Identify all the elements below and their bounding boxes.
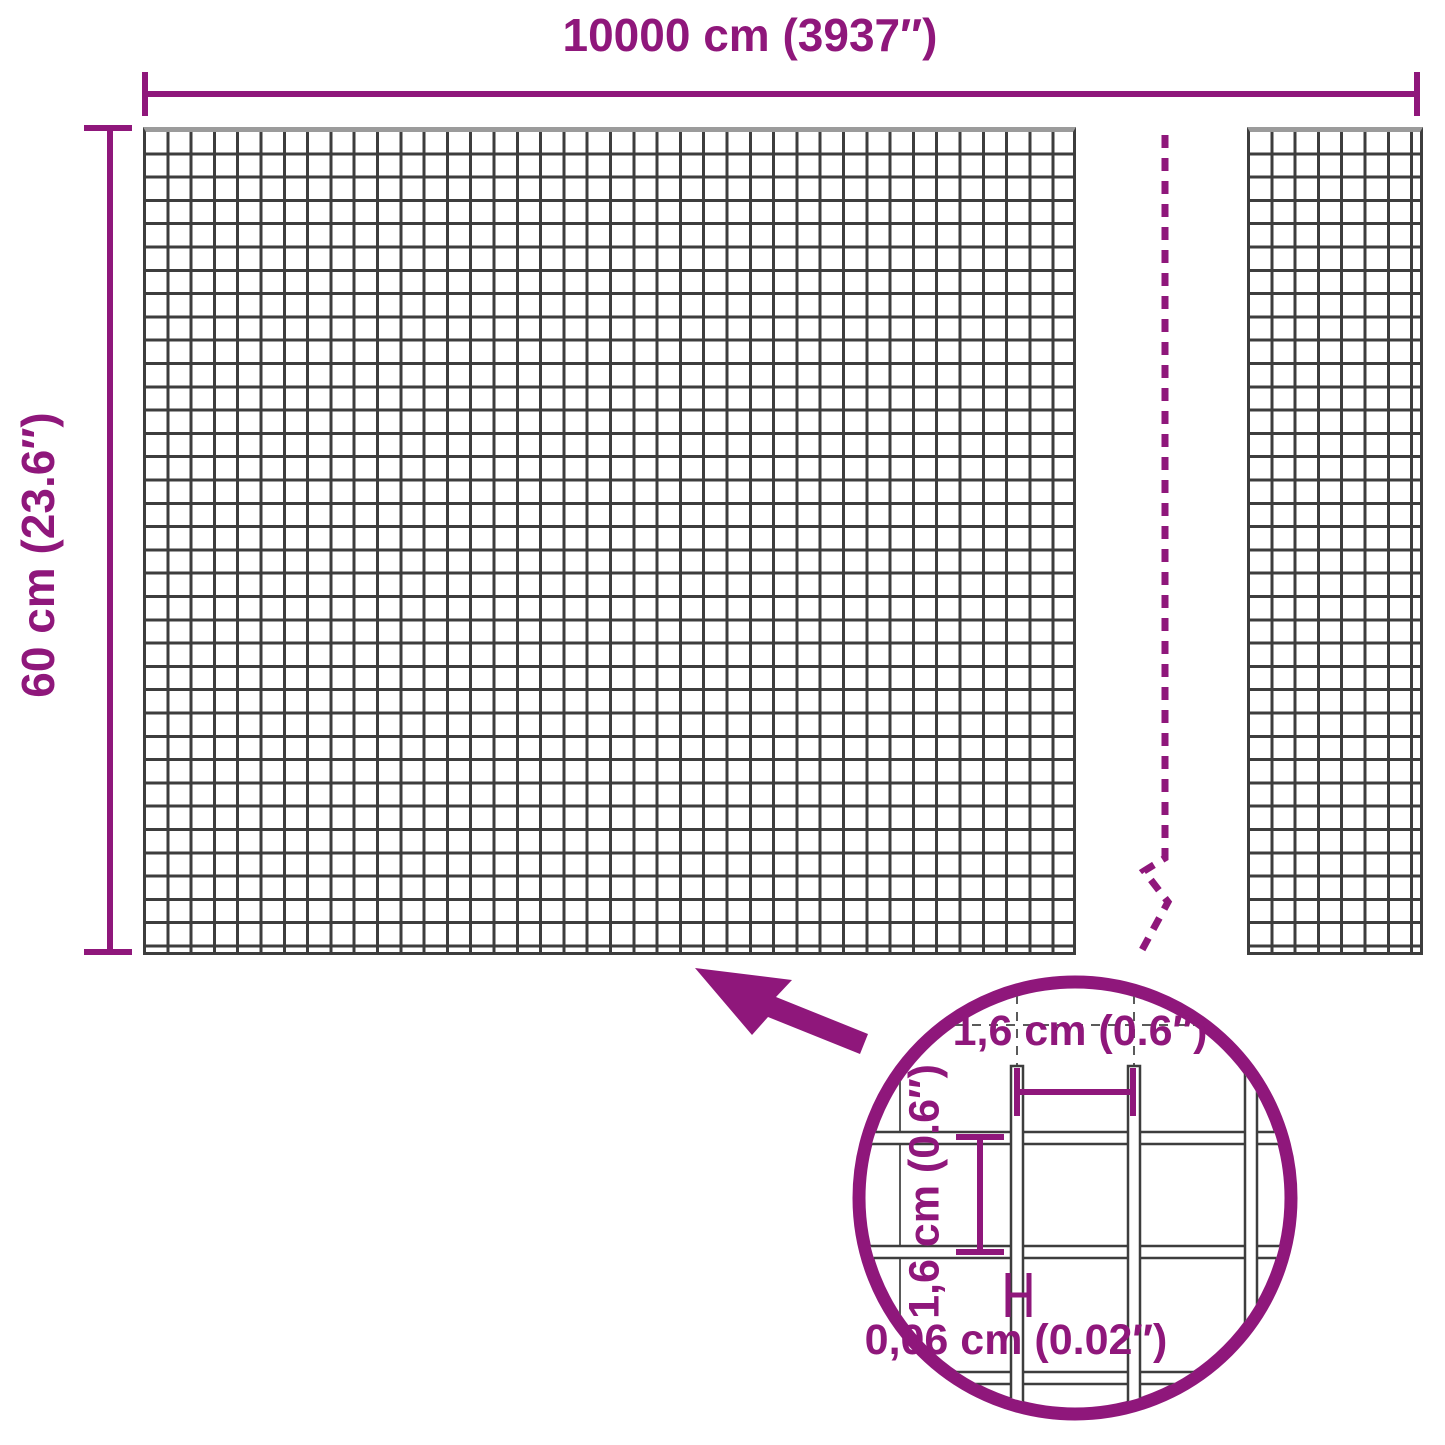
roll-height-label: 60 cm (23.6″) — [15, 200, 61, 910]
mesh-panel-left — [143, 127, 1076, 955]
width-dimension-tick-left — [142, 72, 148, 116]
wire-thickness-marker — [1008, 1273, 1029, 1317]
dimension-diagram: 10000 cm (3937″) 60 cm (23.6″) — [0, 0, 1445, 1445]
break-line-icon — [1142, 135, 1168, 950]
height-dimension-tick-top — [84, 125, 132, 131]
vertical-wire — [1128, 1066, 1140, 1426]
mesh-opening-width-bracket — [1017, 1068, 1133, 1116]
height-dimension-line — [107, 128, 113, 952]
zoom-arrow-icon — [695, 968, 868, 1054]
mesh-opening-height-bracket — [956, 1137, 1004, 1252]
height-dimension-tick-bottom — [84, 949, 132, 955]
vertical-wire — [1011, 1066, 1023, 1426]
total-width-label: 10000 cm (3937″) — [395, 12, 1105, 58]
width-dimension-line — [145, 91, 1417, 97]
width-dimension-tick-right — [1414, 72, 1420, 116]
wire-thickness-label: 0,06 cm (0.02″) — [816, 1319, 1216, 1362]
mesh-panel-right — [1247, 127, 1423, 955]
vertical-wire — [1245, 1066, 1257, 1426]
